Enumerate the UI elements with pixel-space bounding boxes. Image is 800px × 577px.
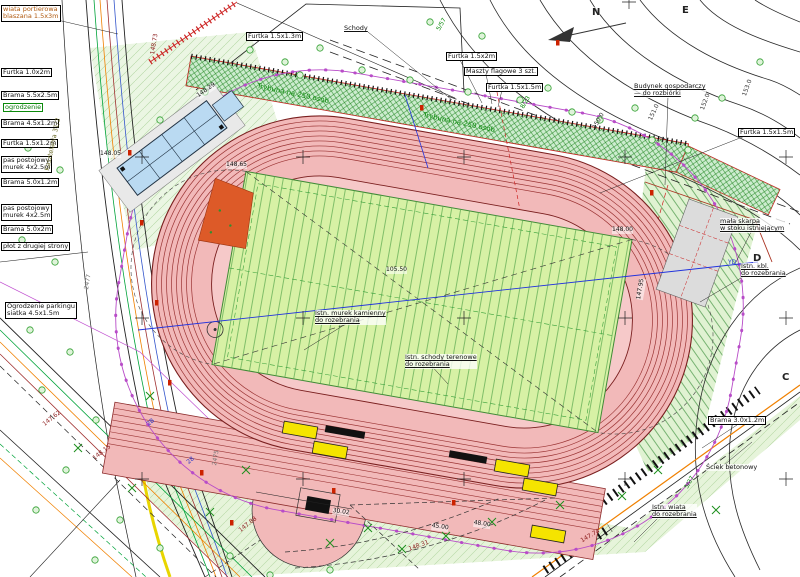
pole-icon [200, 470, 204, 476]
tree-icon [597, 117, 603, 123]
tree-icon [649, 137, 655, 143]
tree-icon [67, 349, 73, 355]
pole-icon [140, 220, 144, 226]
tree-icon [569, 109, 575, 115]
tree-icon [297, 72, 303, 78]
pole-icon [128, 150, 132, 156]
tree-icon [57, 167, 63, 173]
tree-icon [157, 117, 163, 123]
tree-icon [427, 19, 433, 25]
tree-icon [52, 259, 58, 265]
tree-icon [545, 85, 551, 91]
tree-icon [92, 557, 98, 563]
tree-icon [157, 545, 163, 551]
tree-icon [19, 237, 25, 243]
pole-icon [556, 40, 560, 46]
pole-icon [452, 500, 456, 506]
pole-icon [230, 520, 234, 526]
pole-icon [420, 105, 424, 111]
tree-icon [632, 105, 638, 111]
tree-icon [33, 507, 39, 513]
tree-icon [27, 327, 33, 333]
tree-icon [407, 77, 413, 83]
tree-icon [465, 89, 471, 95]
tree-icon [93, 417, 99, 423]
tree-icon [317, 45, 323, 51]
tree-icon [227, 553, 233, 559]
tree-icon [719, 95, 725, 101]
tree-icon [267, 572, 273, 577]
tree-icon [685, 147, 691, 153]
tree-icon [247, 47, 253, 53]
tree-icon [692, 115, 698, 121]
site-plan-drawing [0, 0, 800, 577]
tree-icon [517, 97, 523, 103]
site-plan-canvas: wiata portierowa blaszana 1.5x3mFurtka 1… [0, 0, 800, 577]
tree-icon [202, 89, 208, 95]
tree-icon [282, 59, 288, 65]
tree-icon [25, 145, 31, 151]
tree-icon [359, 67, 365, 73]
tree-icon [757, 59, 763, 65]
tree-icon [327, 567, 333, 573]
pole-icon [168, 380, 172, 386]
pole-icon [332, 488, 336, 494]
tree-icon [117, 517, 123, 523]
pole-icon [650, 190, 654, 196]
tree-icon [39, 387, 45, 393]
pole-icon [155, 300, 159, 306]
tree-icon [63, 467, 69, 473]
tree-icon [479, 33, 485, 39]
